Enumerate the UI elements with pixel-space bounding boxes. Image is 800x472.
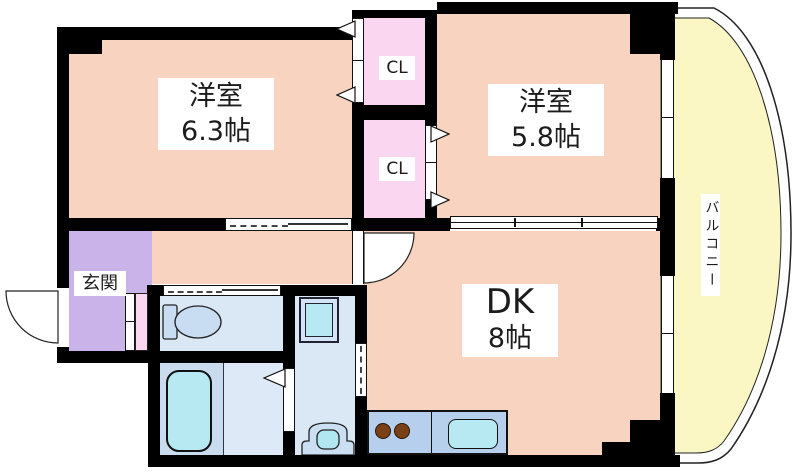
wall-closet-divider xyxy=(364,105,425,120)
wall-entrance-bottom xyxy=(57,351,160,363)
room-label-western-right: 洋室 5.8帖 xyxy=(488,84,604,156)
wall-top-right xyxy=(437,2,678,14)
closet-upper-door-arrow xyxy=(336,20,356,38)
entrance-door-arc xyxy=(2,285,60,347)
closet-lower-door-arrow xyxy=(430,191,450,209)
room-name: 洋室 xyxy=(162,79,270,114)
stove-burner xyxy=(394,423,410,439)
room-name: バルコニー xyxy=(703,200,719,290)
wall-washroom-right-b xyxy=(355,397,367,467)
kitchen-sink xyxy=(448,419,498,449)
wall-toilet-bath xyxy=(148,351,295,363)
window-tick xyxy=(662,117,673,118)
wall-bath-left xyxy=(148,351,160,467)
wash-basin xyxy=(300,420,356,455)
wall-right-upper xyxy=(660,2,675,60)
wall-washroom-right-a xyxy=(355,285,367,343)
window-dk xyxy=(661,276,674,393)
wall-pillar-bottomright xyxy=(630,420,675,467)
room-name: CL xyxy=(386,58,407,78)
kitchen-counter-divider xyxy=(431,412,432,453)
partition-line xyxy=(451,222,657,223)
closet-door-split xyxy=(426,162,436,163)
dk-door-arc xyxy=(364,231,416,285)
entrance-floor-lower xyxy=(69,293,125,351)
room-size: 8帖 xyxy=(466,321,554,356)
stove-burner xyxy=(375,423,391,439)
closet-upper-door-arrow xyxy=(336,86,356,104)
washing-machine xyxy=(305,303,333,337)
sliding-door-toilet xyxy=(163,285,281,296)
dk-doorway-frame xyxy=(352,231,364,284)
window-western-right xyxy=(661,60,674,178)
room-size: 6.3帖 xyxy=(162,114,270,149)
shoe-cabinet xyxy=(135,293,148,351)
sliding-door-dash xyxy=(360,346,362,394)
room-label-balcony: バルコニー xyxy=(701,194,720,296)
partition-tick xyxy=(514,218,516,227)
room-name: DK xyxy=(466,285,554,321)
room-label-closet-lower: CL xyxy=(379,157,415,181)
sliding-door-dash xyxy=(168,291,222,293)
wall-pillar-bottomright2 xyxy=(602,442,630,467)
room-label-closet-upper: CL xyxy=(379,56,415,80)
room-name: 玄関 xyxy=(82,273,118,294)
sliding-door-panel xyxy=(222,289,278,291)
room-label-western-left: 洋室 6.3帖 xyxy=(158,78,274,150)
floorplan: 洋室 6.3帖 洋室 5.8帖 DK 8帖 玄関 CL CL バルコニー xyxy=(0,0,800,472)
wall-bottom xyxy=(148,455,680,467)
shoe-cabinet-door xyxy=(125,293,135,351)
partition-tick xyxy=(581,218,583,227)
wall-closet-left xyxy=(352,103,364,231)
wall-mid-left xyxy=(57,218,225,231)
bathtub xyxy=(166,370,212,452)
room-size: 5.8帖 xyxy=(492,120,600,155)
bathroom-door-arrow xyxy=(262,368,286,388)
room-name: 洋室 xyxy=(492,85,600,120)
room-name: CL xyxy=(386,159,407,179)
wall-toilet-left xyxy=(147,285,160,351)
wall-closet-right xyxy=(425,10,437,125)
toilet xyxy=(160,296,283,351)
sliding-door-dash xyxy=(230,225,288,227)
room-label-entrance: 玄関 xyxy=(74,271,126,296)
room-label-dk: DK 8帖 xyxy=(462,284,558,357)
hallway-floor xyxy=(125,231,352,284)
wall-mid-right xyxy=(656,218,675,231)
sliding-door-panel xyxy=(288,223,348,225)
wall-left-upper xyxy=(57,27,69,288)
wall-bath-washroom-b xyxy=(283,432,295,467)
kitchen-counter xyxy=(367,410,508,455)
sliding-door-washroom-dk xyxy=(355,343,367,397)
partition-western-right-dk xyxy=(450,216,658,229)
window-tick xyxy=(662,333,673,334)
shoe-cabinet-door-split xyxy=(126,321,134,322)
sliding-door-western-left xyxy=(225,218,352,231)
closet-lower-door-arrow xyxy=(430,125,450,143)
closet-door-split xyxy=(353,60,363,61)
